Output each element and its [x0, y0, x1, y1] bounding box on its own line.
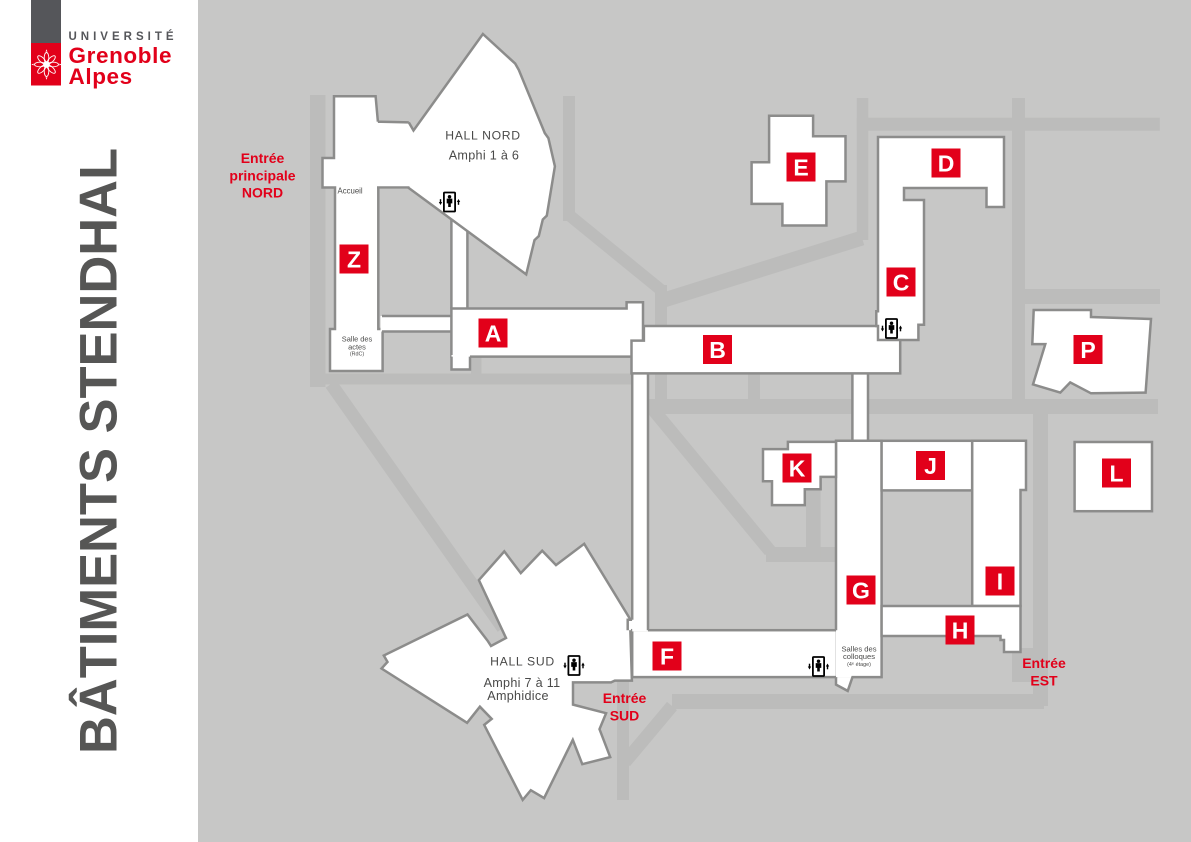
svg-text:E: E — [793, 154, 808, 180]
svg-text:D: D — [938, 150, 955, 176]
svg-text:B: B — [709, 337, 726, 363]
svg-text:NORD: NORD — [242, 185, 283, 201]
svg-text:Alpes: Alpes — [69, 64, 133, 89]
svg-text:I: I — [997, 568, 1003, 594]
svg-text:Amphidice: Amphidice — [487, 689, 549, 703]
svg-text:A: A — [485, 320, 502, 346]
svg-text:(RdC): (RdC) — [350, 351, 365, 357]
svg-text:L: L — [1109, 460, 1123, 486]
svg-text:EST: EST — [1030, 673, 1058, 689]
svg-text:K: K — [789, 455, 806, 481]
svg-text:P: P — [1080, 337, 1095, 363]
svg-text:principale: principale — [229, 167, 295, 183]
svg-text:Accueil: Accueil — [338, 187, 363, 196]
svg-text:UNIVERSITÉ: UNIVERSITÉ — [69, 30, 178, 43]
svg-text:SUD: SUD — [610, 708, 640, 724]
svg-text:Entrée: Entrée — [1022, 655, 1066, 671]
svg-text:Entrée: Entrée — [603, 690, 647, 706]
svg-text:Amphi 1 à 6: Amphi 1 à 6 — [449, 149, 520, 163]
svg-text:Z: Z — [347, 246, 361, 272]
svg-text:Entrée: Entrée — [241, 150, 285, 166]
svg-text:actes: actes — [348, 343, 366, 352]
svg-text:C: C — [893, 269, 910, 295]
svg-text:BÂTIMENTS STENDHAL: BÂTIMENTS STENDHAL — [67, 148, 128, 754]
svg-text:J: J — [924, 453, 937, 479]
svg-text:Amphi 7 à 11: Amphi 7 à 11 — [484, 676, 561, 690]
svg-text:colloques: colloques — [843, 652, 875, 661]
svg-text:H: H — [952, 617, 969, 643]
svg-text:(4e étage): (4e étage) — [847, 661, 871, 669]
svg-text:F: F — [660, 643, 674, 669]
svg-text:G: G — [852, 577, 870, 603]
svg-text:HALL NORD: HALL NORD — [445, 129, 521, 143]
svg-text:HALL SUD: HALL SUD — [490, 655, 555, 669]
